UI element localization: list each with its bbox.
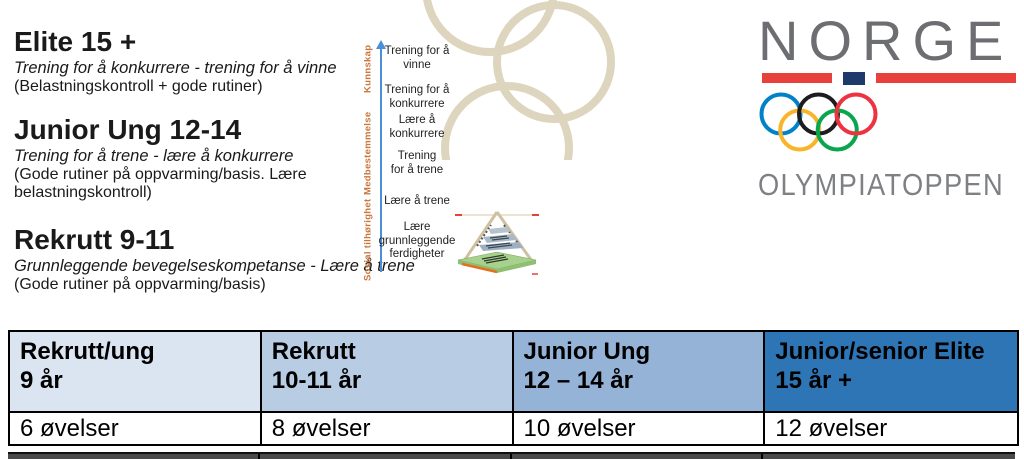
level-title: Rekrutt 9-11 <box>14 224 415 256</box>
cropped-table-row <box>8 452 1015 459</box>
ladder-stage: Lære grunnleggende ferdigheter <box>370 221 464 262</box>
cropped-row-cell <box>763 454 1015 459</box>
ladder-stage: Trening for å konkurrere <box>370 84 464 111</box>
table-cell-exercises: 6 øvelser <box>10 413 262 444</box>
level-title: Elite 15 + <box>14 26 337 58</box>
exercise-table: Rekrutt/ung 9 år Rekrutt 10-11 år Junior… <box>8 330 1019 446</box>
norwegian-flag-bar <box>762 71 1016 85</box>
table-header-rekrutt: Rekrutt 10-11 år <box>262 332 514 413</box>
table-cell-exercises: 10 øvelser <box>514 413 766 444</box>
development-pyramid-image <box>452 202 542 282</box>
ladder-stage: Lære å konkurrere <box>370 114 464 141</box>
level-note: (Gode rutiner på oppvarming/basis) <box>14 276 415 294</box>
table-header-junior-senior-elite: Junior/senior Elite 15 år + <box>765 332 1017 413</box>
flag-red-segment <box>762 73 832 83</box>
table-cell-exercises: 8 øvelser <box>262 413 514 444</box>
ladder-stage: Trening for å vinne <box>370 45 464 72</box>
table-header-junior-ung: Junior Ung 12 – 14 år <box>514 332 766 413</box>
level-subtitle: Grunnleggende bevegelseskompetanse - Lær… <box>14 256 415 276</box>
cropped-row-cell <box>260 454 512 459</box>
level-subtitle: Trening for å konkurrere - trening for å… <box>14 58 337 78</box>
slide-canvas: Elite 15 + Trening for å konkurrere - tr… <box>0 0 1024 459</box>
level-block-junior-ung: Junior Ung 12-14 Trening for å trene - l… <box>14 114 307 202</box>
flag-gap <box>865 73 876 83</box>
cropped-row-cell <box>8 454 260 459</box>
logo-org-name: OLYMPIATOPPEN <box>758 168 1004 202</box>
table-header-rekrutt-ung: Rekrutt/ung 9 år <box>10 332 262 413</box>
level-block-elite: Elite 15 + Trening for å konkurrere - tr… <box>14 26 337 96</box>
logo-country-name: NORGE <box>758 12 1013 70</box>
flag-red-segment <box>876 73 1016 83</box>
ladder-stage: Trening for å trene <box>370 150 464 177</box>
flag-navy-segment <box>843 72 865 85</box>
ladder-stage: Lære å trene <box>370 195 464 209</box>
level-note: (Gode rutiner på oppvarming/basis. Lære … <box>14 166 307 202</box>
level-subtitle: Trening for å trene - lære å konkurrere <box>14 146 307 166</box>
level-note: (Belastningskontroll + gode rutiner) <box>14 78 337 96</box>
level-title: Junior Ung 12-14 <box>14 114 307 146</box>
table-cell-exercises: 12 øvelser <box>765 413 1017 444</box>
cropped-row-cell <box>512 454 764 459</box>
flag-gap <box>832 73 843 83</box>
olympic-rings-icon <box>758 91 884 155</box>
level-block-rekrutt: Rekrutt 9-11 Grunnleggende bevegelseskom… <box>14 224 415 294</box>
